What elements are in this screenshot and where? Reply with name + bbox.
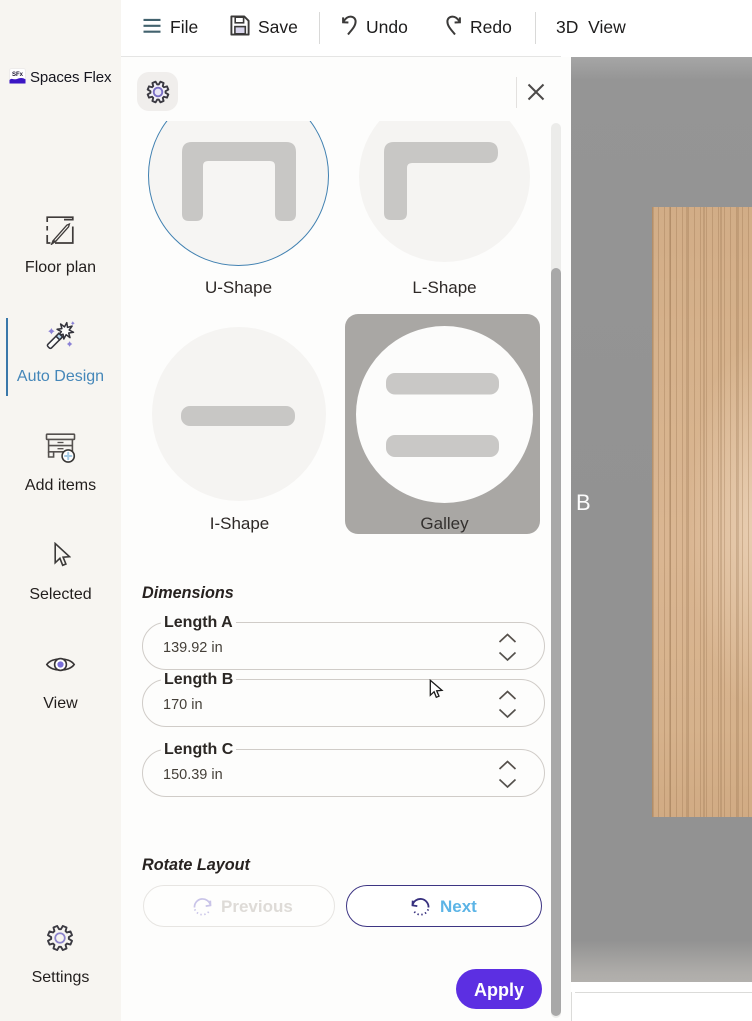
svg-text:SFx: SFx [12, 72, 24, 78]
